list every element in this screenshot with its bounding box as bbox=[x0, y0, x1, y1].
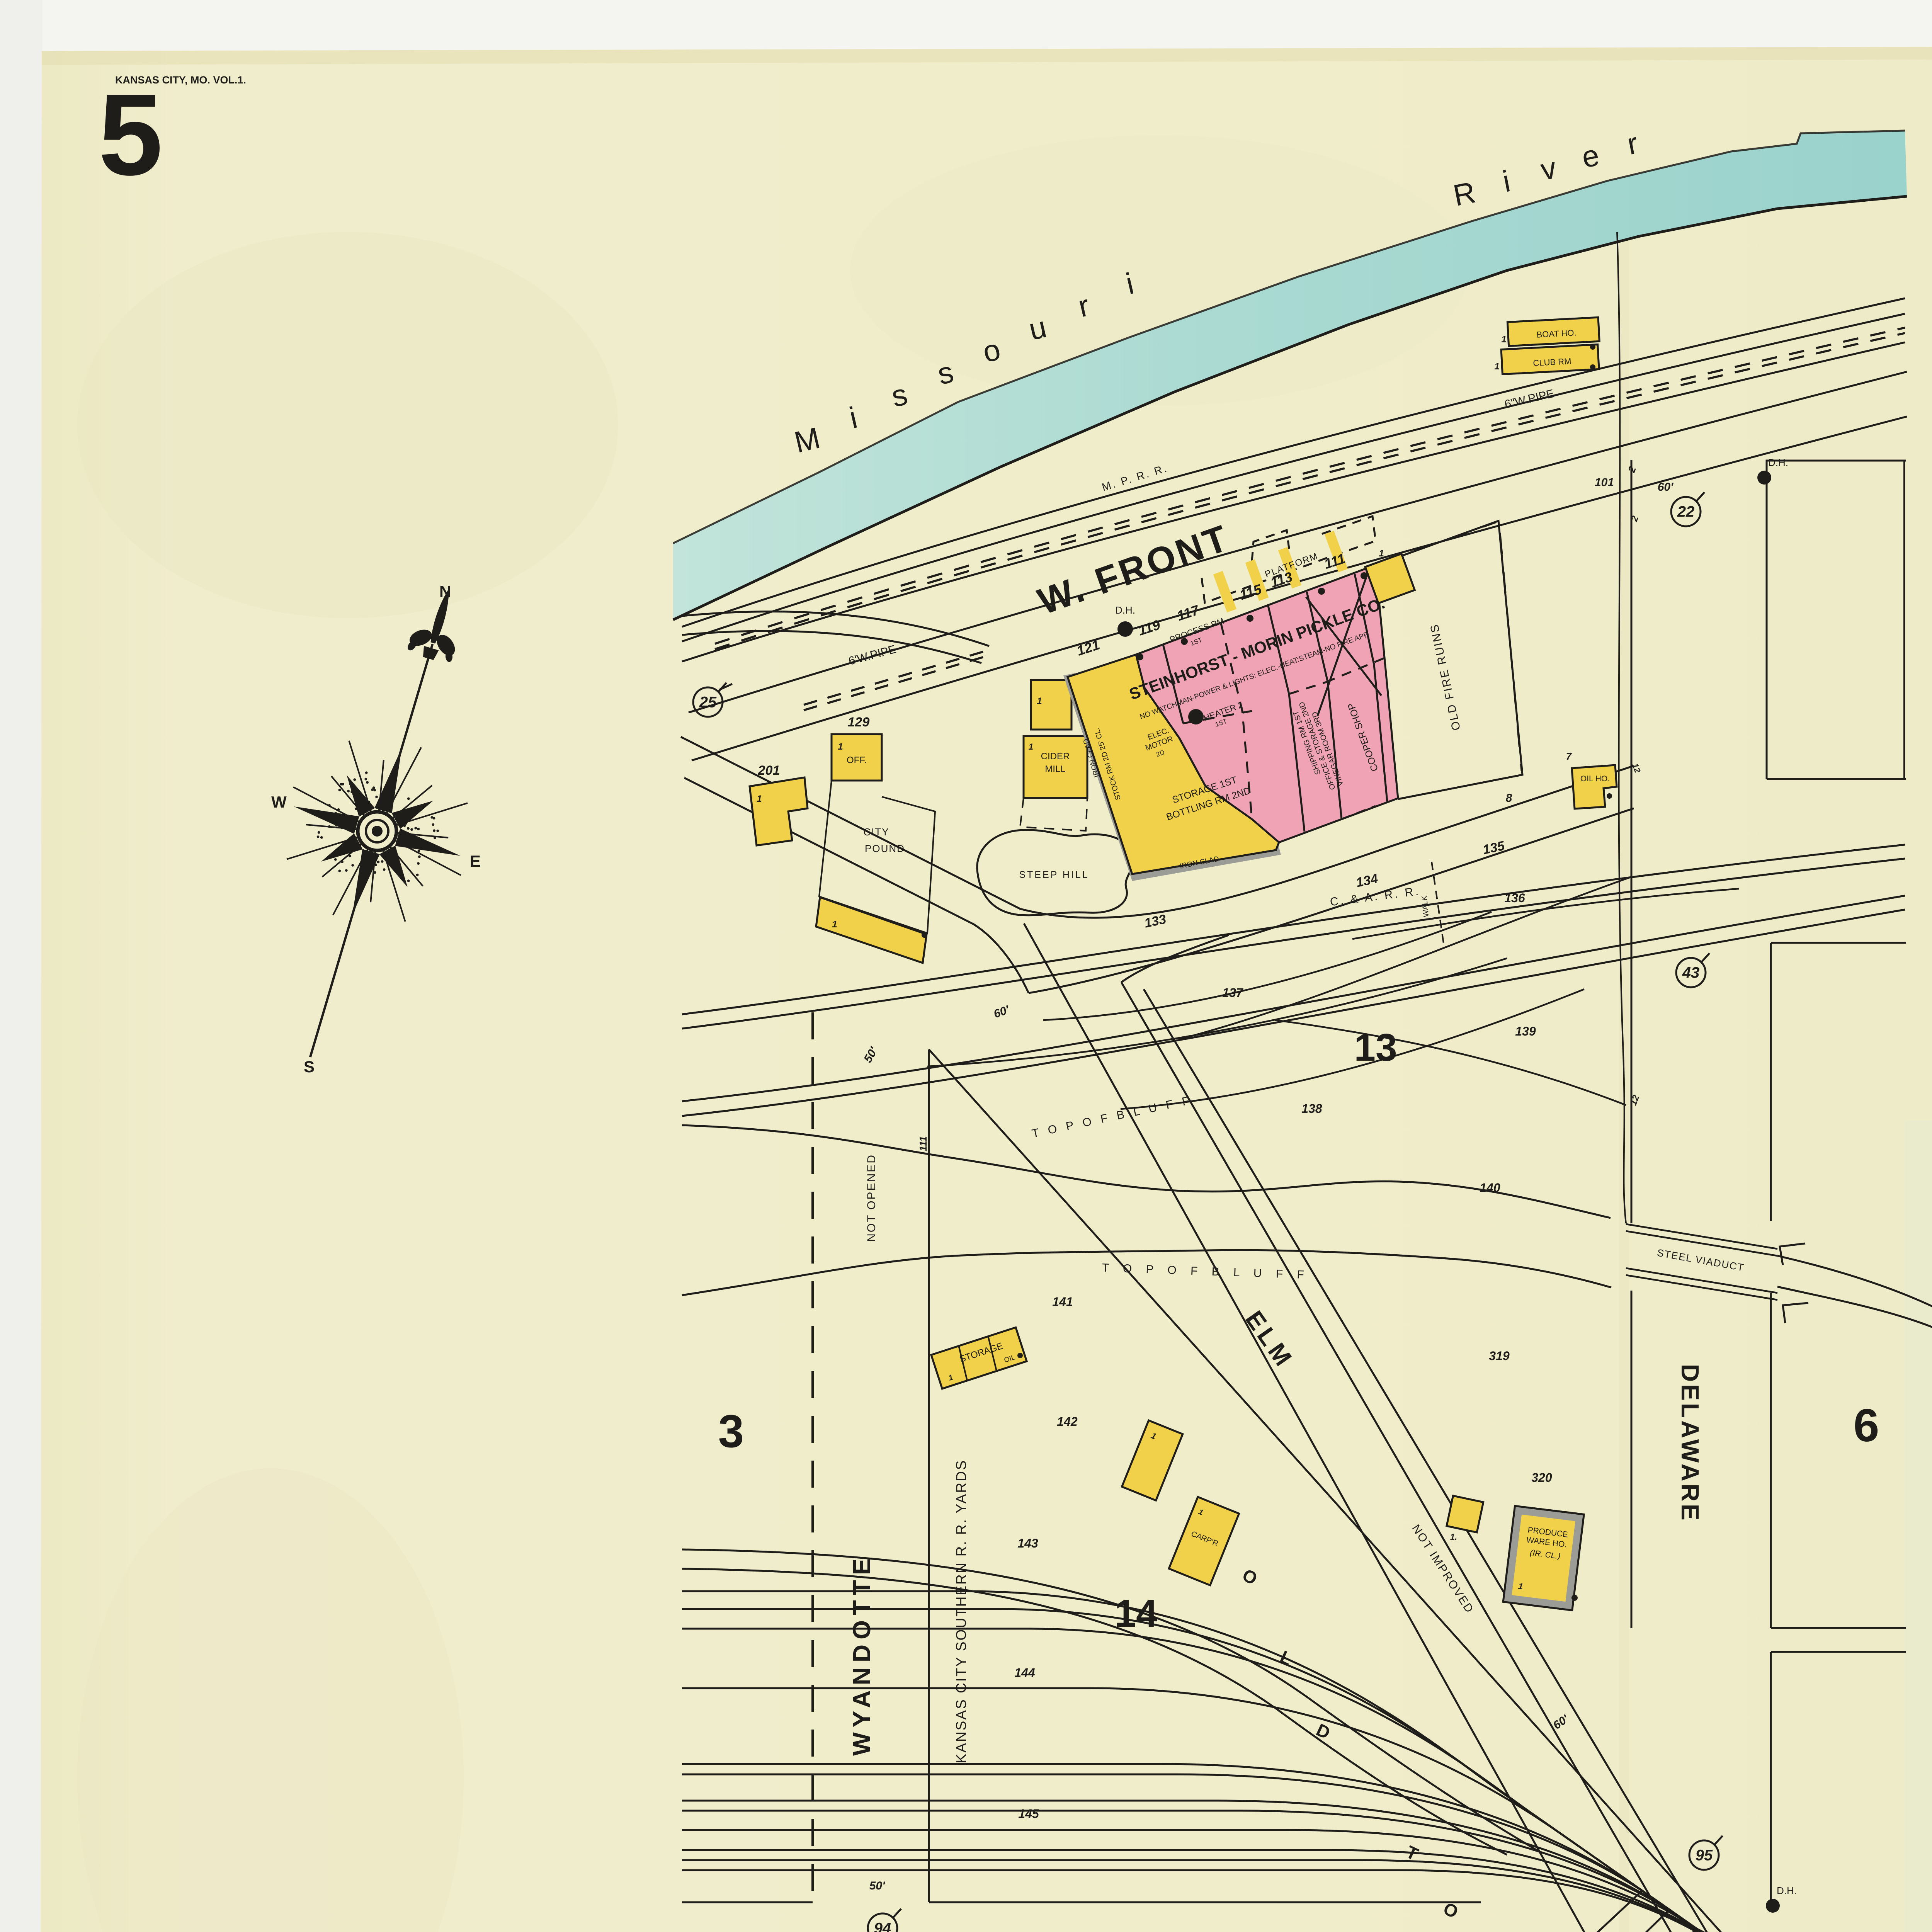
svg-text:139: 139 bbox=[1515, 1024, 1536, 1038]
svg-text:94: 94 bbox=[874, 1920, 891, 1932]
svg-text:S: S bbox=[304, 1058, 315, 1076]
svg-text:POUND: POUND bbox=[865, 843, 905, 854]
svg-text:CIDER: CIDER bbox=[1041, 751, 1070, 762]
svg-text:13: 13 bbox=[1354, 1026, 1397, 1069]
svg-text:1: 1 bbox=[1494, 361, 1499, 372]
svg-text:3: 3 bbox=[718, 1405, 744, 1457]
svg-text:DELAWARE: DELAWARE bbox=[1676, 1364, 1704, 1523]
svg-text:1: 1 bbox=[838, 742, 843, 752]
svg-text:129: 129 bbox=[848, 715, 870, 730]
svg-text:145: 145 bbox=[1018, 1807, 1039, 1821]
svg-text:CITY: CITY bbox=[863, 826, 889, 838]
svg-text:7: 7 bbox=[1566, 750, 1572, 762]
svg-text:6: 6 bbox=[1854, 1400, 1879, 1451]
svg-text:43: 43 bbox=[1682, 964, 1700, 981]
svg-text:142: 142 bbox=[1057, 1415, 1078, 1429]
svg-text:136: 136 bbox=[1504, 891, 1525, 905]
svg-text:D.H.: D.H. bbox=[1777, 1885, 1797, 1896]
svg-text:D.H.: D.H. bbox=[1768, 457, 1788, 468]
svg-text:NOT OPENED: NOT OPENED bbox=[865, 1154, 878, 1242]
svg-text:8: 8 bbox=[1506, 792, 1512, 804]
svg-text:OIL HO.: OIL HO. bbox=[1580, 774, 1610, 783]
svg-text:1: 1 bbox=[832, 919, 837, 930]
svg-text:144: 144 bbox=[1014, 1666, 1035, 1680]
svg-text:25: 25 bbox=[699, 694, 717, 711]
svg-text:1: 1 bbox=[1037, 696, 1042, 706]
svg-text:STEEP HILL: STEEP HILL bbox=[1019, 869, 1089, 880]
svg-text:1: 1 bbox=[1379, 548, 1384, 559]
svg-text:W: W bbox=[271, 793, 287, 811]
svg-text:111: 111 bbox=[917, 1136, 929, 1151]
svg-text:101: 101 bbox=[1595, 476, 1614, 489]
svg-text:14: 14 bbox=[1114, 1592, 1158, 1635]
svg-text:OFF.: OFF. bbox=[847, 755, 867, 765]
svg-text:140: 140 bbox=[1480, 1181, 1500, 1195]
svg-text:1: 1 bbox=[1501, 334, 1506, 345]
svg-text:1: 1 bbox=[757, 794, 762, 804]
svg-text:CLUB RM: CLUB RM bbox=[1533, 356, 1571, 368]
svg-text:141: 141 bbox=[1052, 1295, 1073, 1309]
svg-text:95: 95 bbox=[1696, 1847, 1713, 1864]
svg-text:E: E bbox=[470, 852, 481, 870]
svg-text:143: 143 bbox=[1017, 1536, 1038, 1550]
svg-text:1.: 1. bbox=[1450, 1532, 1457, 1542]
svg-text:1: 1 bbox=[1029, 742, 1033, 752]
svg-text:60': 60' bbox=[1658, 481, 1673, 493]
svg-text:WYANDOTTE: WYANDOTTE bbox=[848, 1553, 876, 1756]
svg-text:138: 138 bbox=[1301, 1102, 1322, 1116]
svg-text:N: N bbox=[439, 582, 451, 600]
svg-text:320: 320 bbox=[1531, 1471, 1552, 1485]
svg-text:50': 50' bbox=[869, 1879, 885, 1892]
svg-text:5: 5 bbox=[99, 70, 163, 199]
svg-text:201: 201 bbox=[758, 763, 780, 778]
svg-text:22: 22 bbox=[1677, 503, 1695, 520]
svg-text:D.H.: D.H. bbox=[1115, 604, 1135, 616]
svg-text:319: 319 bbox=[1489, 1349, 1510, 1363]
svg-text:MILL: MILL bbox=[1045, 764, 1065, 774]
svg-text:KANSAS CITY SOUTHERN R. R. YAR: KANSAS CITY SOUTHERN R. R. YARDS bbox=[953, 1459, 969, 1764]
svg-text:137: 137 bbox=[1222, 986, 1244, 1000]
